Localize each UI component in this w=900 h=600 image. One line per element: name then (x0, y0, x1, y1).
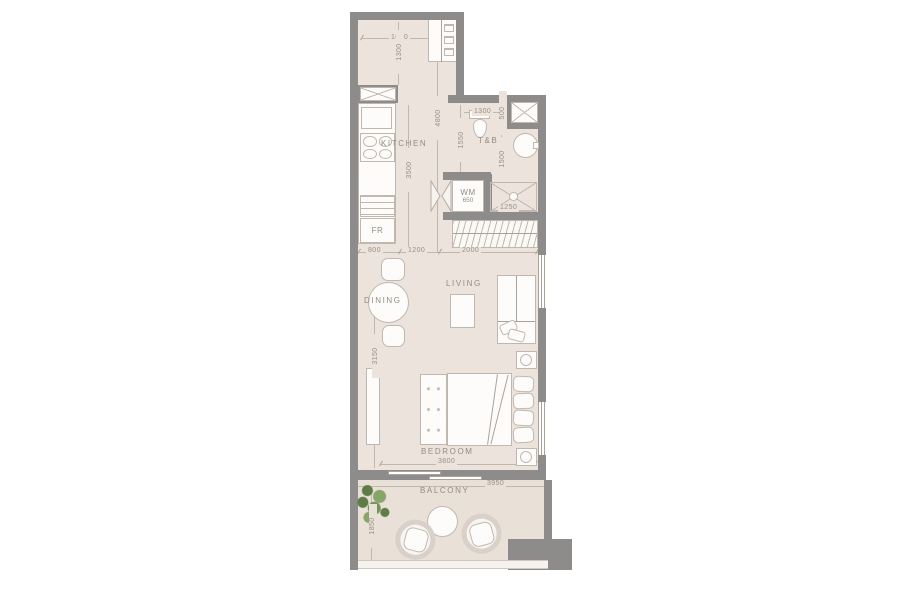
window-bedroom (538, 402, 545, 455)
dim-tb-right-depth: 1500 (499, 137, 507, 181)
bed-mattress (447, 373, 512, 446)
shower-drain-icon (509, 192, 518, 201)
hanger-rail-icon (453, 233, 537, 234)
room-label-dining: DINING (364, 296, 402, 305)
wall-top (352, 12, 464, 20)
sliding-door-panel (388, 471, 441, 475)
small-appliance-icon (444, 36, 454, 44)
coffee-table (450, 294, 475, 328)
lamp-icon (520, 354, 532, 366)
wall-balcony-right (544, 480, 552, 542)
shaft-icon (511, 102, 538, 123)
sofa-seam (516, 276, 517, 322)
room-label-tb: T&B (478, 136, 498, 145)
wardrobe (452, 220, 538, 248)
dining-chair (382, 325, 405, 347)
dim-tb-left-depth: 1550 (458, 118, 466, 162)
dim-living-zone-width: 2000 (460, 247, 481, 255)
balcony-railing (358, 560, 548, 569)
bed-pillow (512, 409, 534, 426)
small-appliance-icon (444, 24, 454, 32)
bed-pillow (513, 392, 535, 409)
dim-kitchen-length: 4800 (435, 96, 443, 140)
washing-machine-label: WM (460, 188, 475, 197)
fridge: FR (360, 218, 395, 243)
dining-chair (381, 258, 405, 281)
counter-divider (441, 20, 442, 62)
washbasin-tap-icon (533, 142, 539, 149)
bed-pillow (513, 375, 535, 392)
bed-bench (420, 374, 447, 445)
fridge-label: FR (372, 226, 384, 235)
room-label-bedroom: BEDROOM (421, 447, 474, 456)
small-appliance-icon (444, 48, 454, 56)
duct-vent-icon (360, 87, 396, 101)
dim-living-bedroom-depth: 3150 (372, 334, 380, 378)
dim-bedroom-width: 3800 (436, 458, 457, 466)
bifold-door-icon (430, 180, 452, 212)
dim-balcony-width: 3950 (485, 480, 506, 488)
bed-pillow (512, 426, 534, 443)
wall-right-mid (538, 308, 546, 402)
dim-kitchen-entry-depth: 1300 (396, 30, 404, 74)
dim-wm-width: 650 (463, 197, 474, 204)
dimension-line (358, 252, 538, 253)
dim-balcony-depth: 1850 (369, 504, 377, 548)
dim-kitchen-counter-run: 3500 (406, 148, 414, 192)
dim-shower-width: 1250 (498, 204, 519, 212)
room-label-balcony: BALCONY (420, 486, 469, 495)
wall-right-upper (538, 95, 546, 255)
kitchen-sink (361, 107, 392, 129)
burner-icon (363, 136, 377, 147)
sofa-seam (498, 321, 535, 322)
dresser (366, 368, 380, 445)
wall-kitchen-right (456, 12, 464, 103)
room-label-kitchen: KITCHEN (381, 139, 427, 148)
kitchen-drawer (360, 195, 395, 217)
washing-machine: WM 650 (452, 180, 484, 212)
wall-closet-back (443, 212, 546, 220)
dimension-line (380, 464, 536, 465)
dim-living-zone-offset: 1200 (406, 247, 427, 255)
dim-tb-door-offset: 500 (499, 91, 507, 135)
wall-shaft-bottom (504, 122, 546, 129)
burner-icon (379, 149, 393, 160)
room-label-living: LIVING (446, 279, 482, 288)
sliding-door-panel (429, 476, 482, 480)
burner-icon (363, 149, 377, 160)
dim-dining-zone-width: 800 (366, 247, 383, 255)
dim-tb-width: 1300 (472, 108, 493, 116)
window-living (538, 255, 545, 308)
floor-plan: FR WM 650 (0, 0, 900, 600)
lamp-icon (520, 451, 532, 463)
